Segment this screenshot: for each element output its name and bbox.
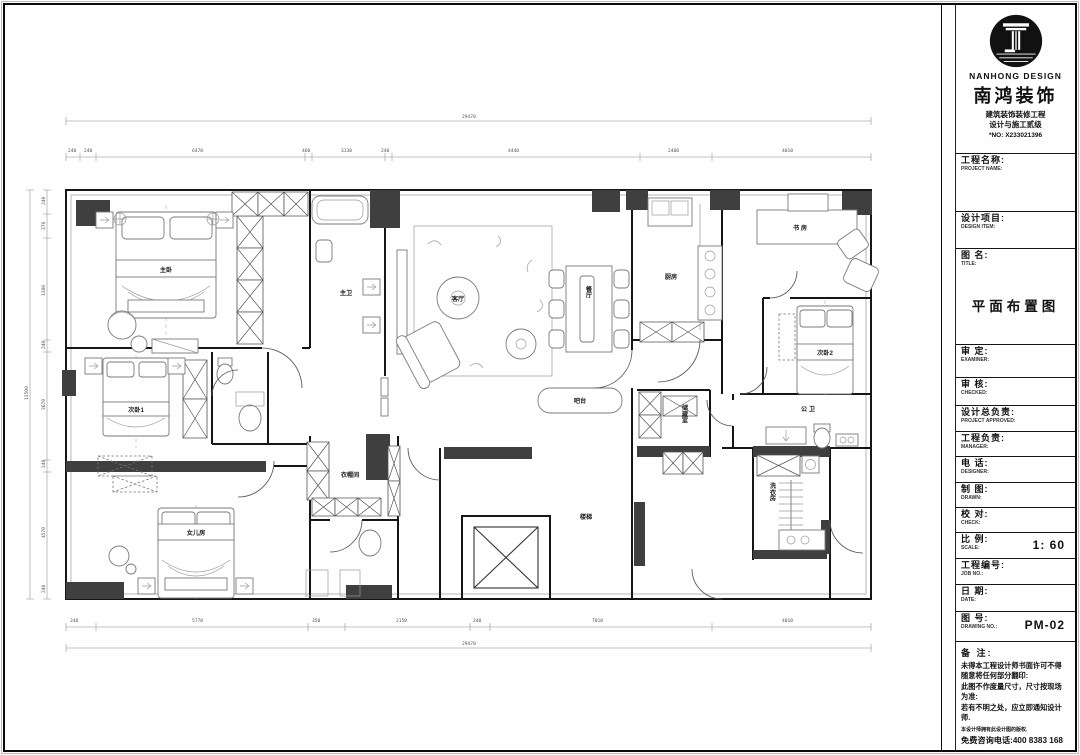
drawing-number: PM-02 <box>1025 618 1065 632</box>
row-examiner: 审 定: EXAMINER: <box>956 344 1075 377</box>
room-label-bedroom-1: 次卧1 <box>128 406 144 414</box>
svg-text:29470: 29470 <box>462 114 476 120</box>
room-label-study: 书 房 <box>793 224 807 232</box>
bathroom-1-fixtures <box>217 358 264 431</box>
row-designer-phone: 电 话: DESIGNER: <box>956 456 1075 482</box>
svg-text:4010: 4010 <box>782 618 793 624</box>
room-label-bedroom-2: 次卧2 <box>817 349 833 357</box>
room-label-dining-room: 餐厅 <box>585 285 592 299</box>
stair-hall: 楼梯 <box>580 513 593 521</box>
svg-text:240: 240 <box>84 148 93 154</box>
svg-text:240: 240 <box>41 459 47 468</box>
svg-text:350: 350 <box>312 618 321 624</box>
brand-header: NANHONG DESIGN 南鸿装饰 建筑装饰装修工程 设计与施工贰级 *NO… <box>956 5 1075 153</box>
row-title: 图 名: TITLE: 平面布置图 <box>956 248 1075 344</box>
brand-line2: 设计与施工贰级 <box>956 120 1075 130</box>
room-label-living-room: 客厅 <box>451 295 465 303</box>
row-check: 校 对: CHECK: <box>956 507 1075 532</box>
svg-text:240: 240 <box>381 148 390 154</box>
brand-cert-no: *NO: X233021396 <box>956 132 1075 139</box>
daughter-room-furniture: 女儿房 <box>109 505 253 599</box>
drawing-sheet: 29470 240 240 6470 460 3130 240 4440 240… <box>0 0 1080 755</box>
room-label-master-bath: 主卫 <box>340 289 353 297</box>
svg-text:2150: 2150 <box>396 618 407 624</box>
room-label-bar: 吧台 <box>574 397 586 405</box>
kitchen-fixtures: 厨房 <box>648 198 722 330</box>
svg-text:6470: 6470 <box>192 148 203 154</box>
row-checked: 审 核: CHECKED: <box>956 377 1075 405</box>
row-scale: 比 例: SCALE: 1: 60 <box>956 532 1075 558</box>
drawing-title: 平面布置图 <box>956 295 1075 315</box>
floorplan-svg: 29470 240 240 6470 460 3130 240 4440 240… <box>0 0 941 755</box>
brand-line1: 建筑装饰装修工程 <box>956 110 1075 120</box>
dimension-left: 240 370 1380 240 3670 240 4570 240 13500 <box>24 190 51 599</box>
svg-text:13500: 13500 <box>24 386 30 400</box>
svg-text:240: 240 <box>41 196 47 205</box>
svg-text:370: 370 <box>41 221 47 230</box>
row-date: 日 期: DATE: <box>956 584 1075 611</box>
svg-text:240: 240 <box>41 584 47 593</box>
svg-text:7010: 7010 <box>592 618 603 624</box>
row-drawing-no: 图 号: DRAWING NO.: PM-02 <box>956 611 1075 641</box>
hotline-phone: 免费咨询电话:400 8383 168 <box>961 734 1073 746</box>
room-label-daughter-room: 女儿房 <box>187 529 206 537</box>
floorplan-area: 29470 240 240 6470 460 3130 240 4440 240… <box>0 0 941 755</box>
room-label-stairs: 楼梯 <box>580 513 593 521</box>
public-bath-fixtures: 公 卫 <box>766 406 858 448</box>
bedroom1-furniture: 次卧1 <box>85 355 185 448</box>
svg-text:240: 240 <box>41 340 47 349</box>
svg-text:2400: 2400 <box>668 148 679 154</box>
room-label-laundry: 洗衣房 <box>769 482 777 502</box>
svg-text:4440: 4440 <box>508 148 519 154</box>
bar-counter: 吧台 <box>538 388 622 413</box>
dimension-bottom: 240 5770 350 2150 240 7010 4010 29470 <box>66 618 871 652</box>
living-room-furniture: 客厅 <box>395 226 552 390</box>
row-project-approved: 设计总负责: PROJECT APPROVED: <box>956 405 1075 431</box>
scale-value: 1: 60 <box>1033 538 1065 552</box>
svg-text:460: 460 <box>302 148 311 154</box>
notes-block: 备 注: 未得本工程设计师书面许可不得 随意将任何部分翻印: 此图不作度量尺寸，… <box>956 641 1075 750</box>
master-bathroom: 主卫 <box>312 196 380 333</box>
brand-name-en: NANHONG DESIGN <box>956 71 1075 81</box>
row-manager: 工程负责: MANAGER: <box>956 431 1075 456</box>
room-label-storage: 储藏室 <box>681 404 689 424</box>
dimension-top: 29470 240 240 6470 460 3130 240 4440 240… <box>66 114 871 161</box>
room-label-public-bath: 公 卫 <box>801 406 816 413</box>
row-job-no: 工程编号: JOB NO.: <box>956 558 1075 584</box>
title-block: NANHONG DESIGN 南鸿装饰 建筑装饰装修工程 设计与施工贰级 *NO… <box>941 5 1075 750</box>
room-label-kitchen: 厨房 <box>665 273 677 281</box>
svg-text:240: 240 <box>473 618 482 624</box>
svg-text:3670: 3670 <box>41 399 47 410</box>
elevator-shaft <box>462 516 550 599</box>
storage-room: 储藏室 <box>681 404 689 424</box>
brand-name-cn: 南鸿装饰 <box>956 82 1075 108</box>
row-project-name: 工程名称: PROJECT NAME: <box>956 153 1075 211</box>
row-drawn: 制 图: DRAWN: <box>956 482 1075 507</box>
dining-set: 餐厅 <box>549 266 629 352</box>
room-label-cloakroom: 衣帽间 <box>341 471 360 479</box>
cloakroom: 衣帽间 <box>341 471 360 479</box>
svg-text:29470: 29470 <box>462 641 476 647</box>
notes-heading: 备 注: <box>961 646 1071 659</box>
row-design-item: 设计项目: DESIGN ITEM: <box>956 211 1075 248</box>
nanhong-logo-icon <box>988 13 1044 69</box>
svg-text:3130: 3130 <box>341 148 352 154</box>
master-bed: 主卧 <box>96 205 233 353</box>
svg-text:4570: 4570 <box>41 527 47 538</box>
svg-text:240: 240 <box>68 148 77 154</box>
room-label-master-bedroom: 主卧 <box>160 266 173 274</box>
svg-text:1380: 1380 <box>41 285 47 296</box>
svg-text:240: 240 <box>70 618 79 624</box>
svg-text:4010: 4010 <box>782 148 793 154</box>
svg-text:5770: 5770 <box>192 618 203 624</box>
bedroom2-furniture: 次卧2 <box>779 300 853 398</box>
